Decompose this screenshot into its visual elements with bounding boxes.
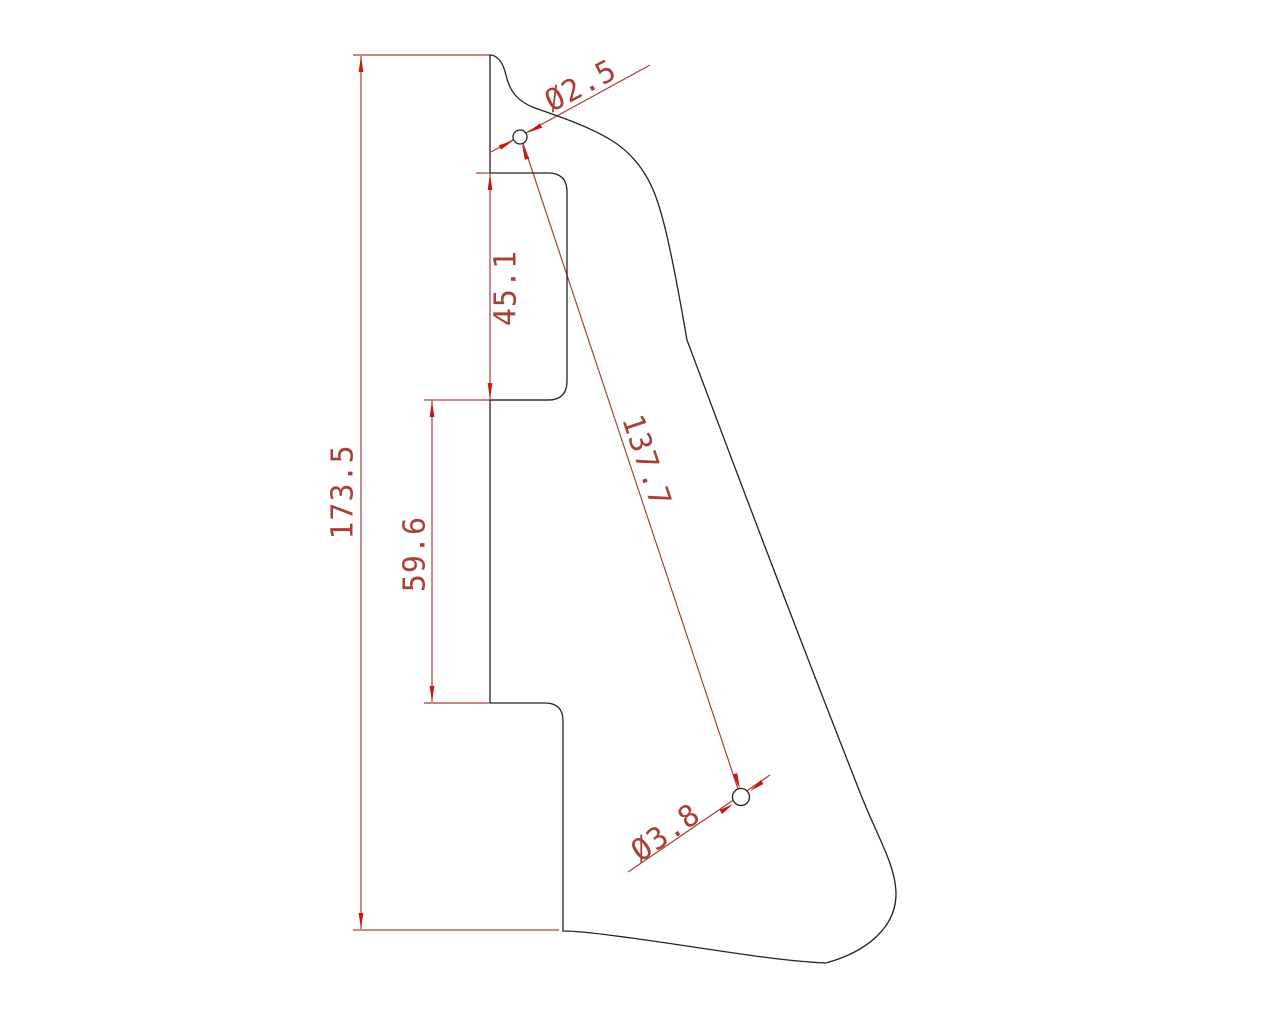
- arrow-tophole-right: [527, 123, 542, 133]
- arrow-spacing-top: [522, 144, 529, 160]
- arrow-tophole-left: [499, 140, 514, 150]
- bottom-screw-hole: [733, 789, 750, 806]
- arrow-overall-top: [359, 56, 364, 72]
- arrowheads: [359, 56, 764, 929]
- arrow-overall-bottom: [359, 913, 364, 929]
- arrow-middle-bottom: [430, 686, 435, 702]
- dimension-lines: [353, 55, 770, 930]
- drawing-canvas: 173.5 45.1 59.6 137.7 Ø2.5 Ø3.8: [0, 0, 1280, 1024]
- arrow-spacing-bottom: [733, 773, 740, 789]
- dimension-label-upper-section: 45.1: [489, 250, 524, 326]
- arrow-bottomhole-right: [750, 780, 764, 791]
- dimension-label-overall-height: 173.5: [326, 444, 361, 539]
- arrow-upper-bottom: [488, 383, 493, 399]
- arrow-middle-top: [430, 401, 435, 417]
- top-screw-hole: [513, 130, 527, 144]
- arrow-upper-top: [488, 174, 493, 190]
- technical-drawing: [0, 0, 1280, 1024]
- dimension-label-middle-section: 59.6: [398, 516, 433, 592]
